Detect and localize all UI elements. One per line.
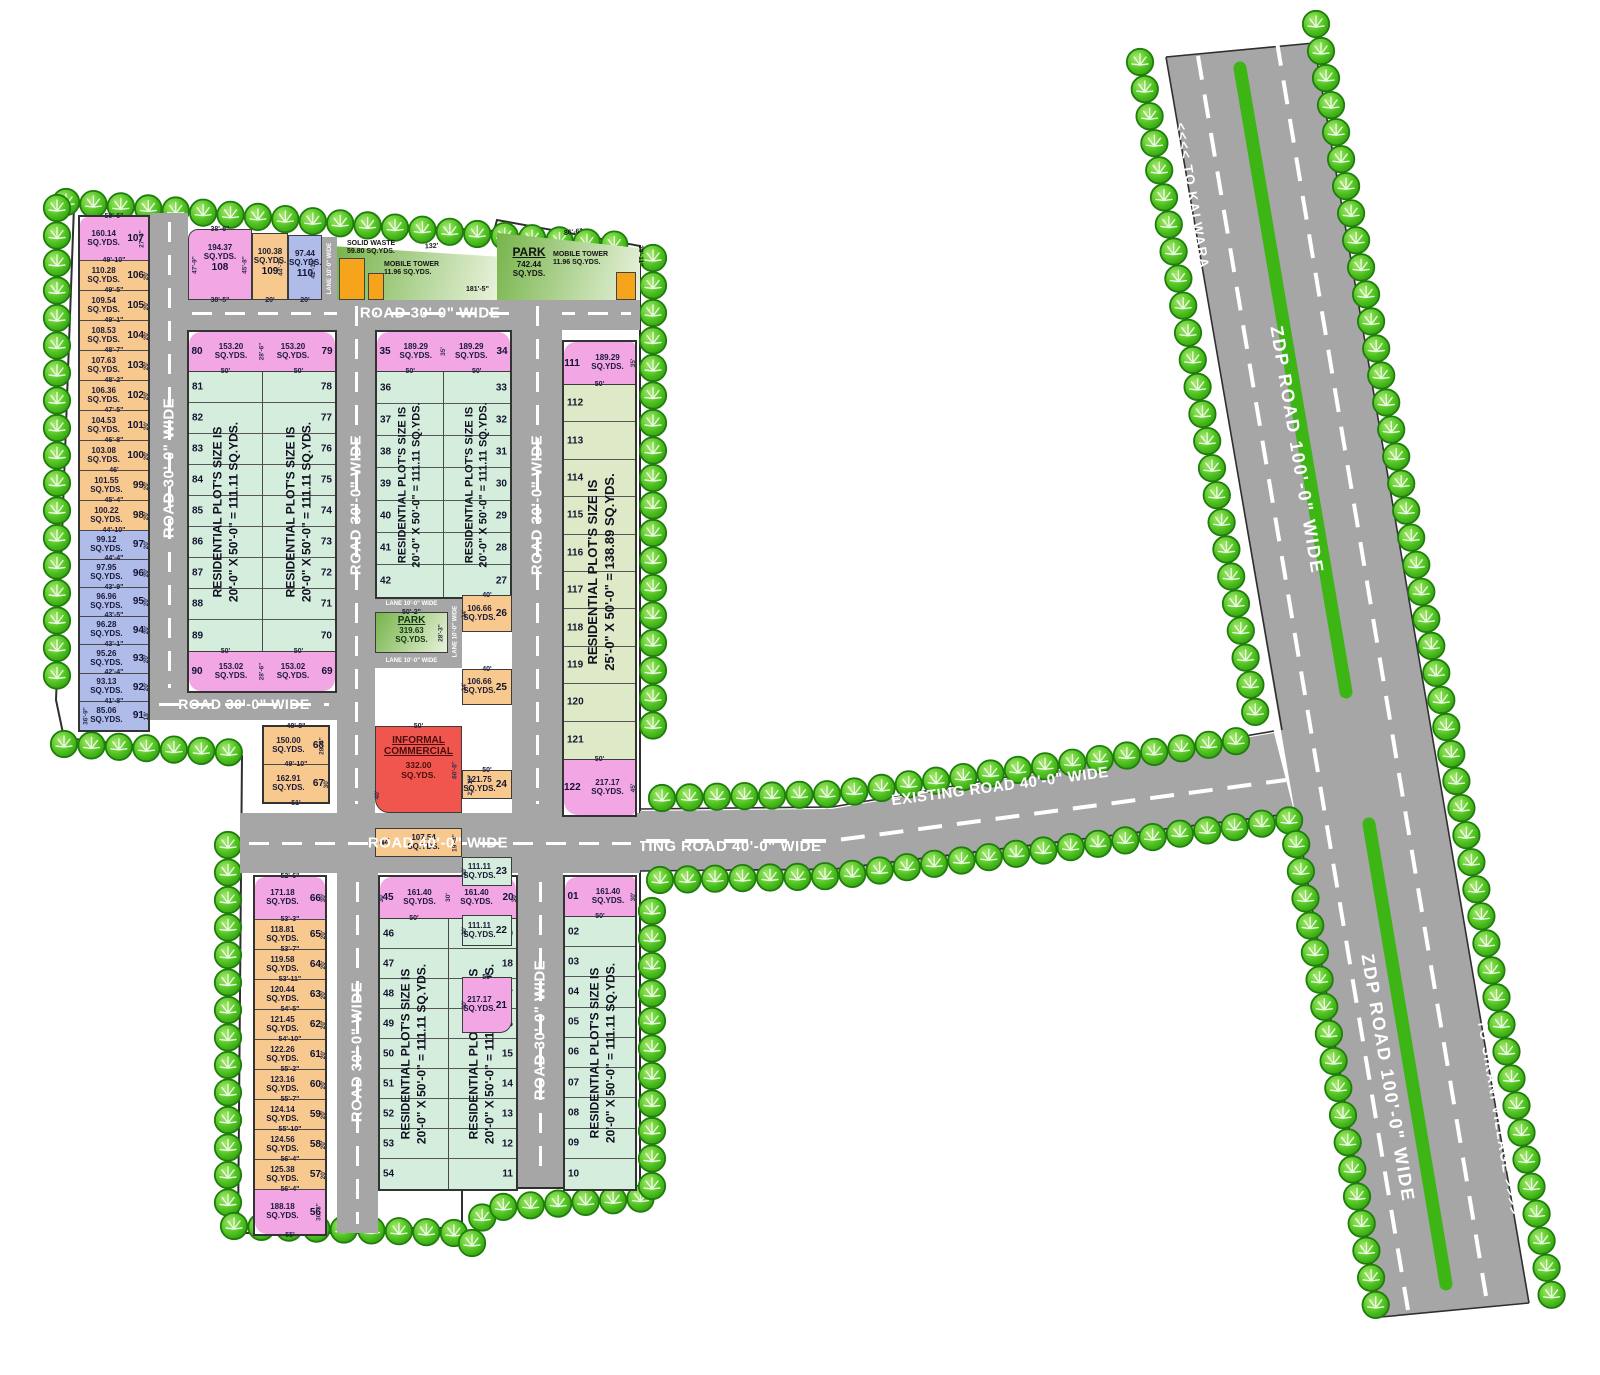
plot-number: 15	[502, 1048, 513, 1059]
plot-number: 54	[383, 1169, 394, 1180]
plot-area: 109.54SQ.YDS.	[80, 297, 127, 315]
tree-icon	[1458, 849, 1484, 875]
tree-icon	[640, 327, 666, 353]
plot-42: 42	[377, 565, 443, 597]
plot-10: 10	[565, 1159, 635, 1189]
dim-mid: 28'-6"	[257, 348, 267, 355]
label-line-2: 20'-0" X 50'-0" = 111.11 SQ.YDS.	[410, 402, 424, 567]
label-line-2: 20'-0" X 50'-0" = 111.11 SQ.YDS.	[299, 421, 315, 601]
road30-label-bottomleft: ROAD 30'-0" WIDE	[178, 696, 310, 712]
area-unit: SQ.YDS.	[264, 746, 313, 755]
plot-number: 71	[321, 599, 332, 610]
tree-icon	[1221, 814, 1247, 840]
dim-label: 42'-4"	[80, 669, 148, 676]
area-unit: SQ.YDS.	[267, 352, 319, 361]
tree-icon	[1433, 714, 1459, 740]
plot-number: 26	[496, 608, 507, 619]
dim-tick: 28'-3"	[438, 624, 445, 642]
tree-icon	[1428, 687, 1454, 713]
tree-icon	[44, 332, 70, 358]
lane-vertical-park: LANE 10'-0" WIDE	[448, 595, 462, 668]
plot-area: 108.53SQ.YDS.	[80, 327, 127, 345]
plot-60: 55'-2"123.16SQ.YDS.6020'	[255, 1069, 325, 1099]
dim-tick: 20'	[143, 626, 150, 635]
tree-icon	[1320, 1048, 1346, 1074]
plot-number: 112	[567, 398, 583, 409]
plot-02: 02	[565, 917, 635, 947]
tree-icon	[1443, 768, 1469, 794]
plot-62: 54'-5"121.45SQ.YDS.6220'	[255, 1009, 325, 1039]
dim-label: 56'-4"	[255, 1156, 325, 1163]
tree-icon	[409, 217, 435, 243]
road30-label-mid2: ROAD 30'-0" WIDE	[529, 435, 546, 575]
tree-icon	[639, 1063, 665, 1089]
dim-label: 47'-5"	[80, 407, 148, 414]
block-b-north-header: 35189.29SQ.YDS.35'189.29SQ.YDS.3450'50'	[377, 332, 510, 372]
tree-icon	[437, 219, 463, 245]
block-a-header: 80153.20SQ.YDS.28'-6"153.20SQ.YDS.7950'5…	[189, 332, 335, 372]
dim-132: 132'	[425, 243, 439, 252]
plot-81: 81	[189, 372, 262, 403]
dim-tick: 20'	[461, 867, 468, 876]
tree-icon	[44, 552, 70, 578]
plot-number: 86	[192, 537, 203, 548]
plot-number: 06	[568, 1047, 579, 1058]
plot-number: 52	[383, 1108, 394, 1119]
tree-icon	[188, 738, 214, 764]
area-unit: SQ.YDS.	[255, 1055, 310, 1064]
tree-icon	[1249, 811, 1275, 837]
tree-icon	[1114, 742, 1140, 768]
tree-icon	[1276, 807, 1302, 833]
tree-icon	[757, 864, 783, 890]
plot-104: 49'-1"108.53SQ.YDS.10420'	[80, 320, 148, 350]
tree-icon	[600, 1187, 626, 1213]
lane-vertical-110: LANE 10'-0" WIDE	[322, 237, 337, 300]
area-unit: SQ.YDS.	[80, 516, 133, 525]
dim-tick: 45'	[630, 783, 637, 792]
mobile-tower-label-2: MOBILE TOWER11.96 SQ.YDS.	[553, 251, 608, 267]
plot-65: 53'-3"118.81SQ.YDS.6520'	[255, 919, 325, 949]
tree-icon	[1363, 335, 1389, 361]
plot-number: 85	[192, 506, 203, 517]
plot-103: 48'-7"107.63SQ.YDS.10320'	[80, 350, 148, 380]
plot-number: 24	[496, 779, 507, 790]
tree-icon	[215, 859, 241, 885]
area-unit: SQ.YDS.	[80, 573, 133, 582]
plot-area: 124.56SQ.YDS.	[255, 1136, 310, 1154]
tree-icon	[1353, 281, 1379, 307]
dim-tick: 45'-8"	[242, 256, 249, 274]
plot-number: 07	[568, 1077, 579, 1088]
tree-icon	[1308, 38, 1334, 64]
tree-icon	[731, 783, 757, 809]
dim-50: 50'	[472, 368, 481, 375]
tree-icon	[1353, 1238, 1379, 1264]
tree-icon	[1363, 1292, 1389, 1318]
tree-icon	[894, 854, 920, 880]
tree-icon	[640, 437, 666, 463]
dim-mid-value: 28'-6"	[259, 343, 266, 361]
tree-icon	[1127, 49, 1153, 75]
plot-number: 106	[127, 270, 144, 281]
tree-icon	[839, 861, 865, 887]
tree-icon	[948, 847, 974, 873]
tree-icon	[1170, 293, 1196, 319]
plot-113: 113	[564, 422, 635, 459]
plot-number: 53	[383, 1138, 394, 1149]
plot-66: 52'-6"171.18SQ.YDS.6630'	[255, 877, 325, 919]
tree-icon	[1311, 994, 1337, 1020]
tree-icon	[217, 202, 243, 228]
plot-112: 112	[564, 385, 635, 422]
plot-89: 89	[189, 620, 262, 651]
area-unit: SQ.YDS.	[449, 352, 495, 361]
tree-icon	[814, 781, 840, 807]
dim-50: 50'	[406, 368, 415, 375]
block-b-north-body: 36373839404142RESIDENTIAL PLOT'S SIZE IS…	[377, 372, 510, 597]
tree-icon	[1218, 563, 1244, 589]
block-b-north: 35189.29SQ.YDS.35'189.29SQ.YDS.3450'50'3…	[375, 330, 512, 599]
label-line-1: RESIDENTIAL PLOT'S SIZE IS	[585, 473, 602, 670]
tree-icon	[1204, 482, 1230, 508]
block-c-body: 112113114115116117118119120121RESIDENTIA…	[564, 385, 635, 759]
plot-number: 50	[383, 1048, 394, 1059]
plot-area: 161.40SQ.YDS.	[453, 889, 500, 907]
area-unit: SQ.YDS.	[80, 276, 127, 285]
tree-icon	[44, 387, 70, 413]
plot-98: 45'-4"100.22SQ.YDS.9820'	[80, 500, 148, 530]
area-unit: SQ.YDS.	[80, 306, 127, 315]
plot-56: 56'-4"188.18SQ.YDS.5630'-3"55'	[255, 1189, 325, 1234]
plot-number: 122	[564, 782, 580, 793]
bottom-right-block: 01161.40SQ.YDS.30'50'020304050607080910R…	[563, 875, 637, 1191]
plot-number: 88	[192, 599, 203, 610]
plot-number: 28	[496, 543, 507, 554]
tree-icon	[1368, 362, 1394, 388]
dim-label: 38'-6"	[189, 226, 251, 233]
block-a-body: 818283848586878889RESIDENTIAL PLOT'S SIZ…	[189, 372, 335, 651]
plot-number: 25	[496, 682, 507, 693]
area-unit: SQ.YDS.	[80, 602, 133, 611]
plot-120: 120	[564, 684, 635, 721]
plot-number: 84	[192, 475, 203, 486]
plot-area: 121.45SQ.YDS.	[255, 1016, 310, 1034]
dim-50: 50'	[294, 368, 303, 375]
tree-icon	[1306, 967, 1332, 993]
plot-area: 111.11SQ.YDS.	[463, 922, 496, 940]
tree-icon	[640, 712, 666, 738]
area-unit: SQ.YDS.	[80, 239, 127, 248]
tree-icon	[640, 272, 666, 298]
dim-label: 46'	[80, 467, 148, 474]
plot-area: 153.02SQ.YDS.	[267, 663, 319, 681]
plot-area: 153.20SQ.YDS.	[205, 343, 257, 361]
tree-icon	[1373, 389, 1399, 415]
plot-number: 03	[568, 956, 579, 967]
tree-icon	[1503, 1092, 1529, 1118]
dim-tick: 30'	[320, 894, 327, 903]
lane-label: LANE 10'-0" WIDE	[375, 653, 448, 668]
tree-icon	[1333, 173, 1359, 199]
tree-icon	[1508, 1119, 1534, 1145]
area-unit: SQ.YDS.	[80, 486, 133, 495]
dim-label: 50'-6"	[80, 213, 148, 220]
plot-area: 118.81SQ.YDS.	[255, 926, 310, 944]
tree-icon	[1513, 1146, 1539, 1172]
plot-68: 48'-8"150.00SQ.YDS.6828'-5"	[264, 727, 328, 764]
dim-50: 50'	[221, 648, 230, 655]
residential-size-label: RESIDENTIAL PLOT'S SIZE IS20'-0" X 50'-0…	[283, 421, 314, 601]
plot-area: 106.66SQ.YDS.	[463, 678, 496, 696]
residential-size-label: RESIDENTIAL PLOT'S SIZE IS20'-0" X 50'-0…	[398, 964, 429, 1144]
block-a-footer: 90153.02SQ.YDS.28'-6"153.02SQ.YDS.6950'5…	[189, 651, 335, 691]
tree-icon	[812, 863, 838, 889]
plot-area: 101.55SQ.YDS.	[80, 477, 133, 495]
tree-icon	[639, 898, 665, 924]
plot-number: 10	[568, 1168, 579, 1179]
plot-number: 70	[321, 630, 332, 641]
dim-tick: 20'	[143, 597, 150, 606]
area-unit: SQ.YDS.	[80, 687, 133, 696]
plot-area: 162.91SQ.YDS.	[264, 775, 313, 793]
plot-36: 36	[377, 372, 443, 404]
plot-number: 04	[568, 987, 579, 998]
tree-icon	[639, 1035, 665, 1061]
road30-label-top: ROAD 30'-0" WIDE	[360, 305, 500, 322]
plot-number: 100	[127, 450, 144, 461]
dim-tick: 20'	[320, 930, 327, 939]
dim-label: 53'-11"	[255, 976, 325, 983]
plot-25: 40'106.66SQ.YDS.2524'	[462, 669, 512, 705]
tree-icon	[215, 1052, 241, 1078]
area-unit: SQ.YDS.	[393, 352, 439, 361]
plot-number: 73	[321, 537, 332, 548]
plot-number: 74	[321, 506, 332, 517]
area-unit: SQ.YDS.	[453, 898, 500, 907]
tree-icon	[44, 497, 70, 523]
plot-number: 69	[319, 666, 335, 677]
tree-icon	[221, 1213, 247, 1239]
plot-number: 90	[189, 666, 205, 677]
dim-label: 40'	[463, 592, 511, 599]
plot-110: 97.44SQ.YDS.11042'-10"20'	[288, 235, 322, 300]
tree-icon	[1139, 824, 1165, 850]
plot-22: 111.11SQ.YDS.2220'	[462, 915, 512, 946]
dim-tick: 20'	[143, 331, 150, 340]
dim-mid-value: 35'	[440, 347, 447, 356]
dim-tick: 20'	[320, 990, 327, 999]
dim-label: 50'	[463, 767, 511, 774]
dim-label: 55'-2"	[255, 1066, 325, 1073]
tree-icon	[44, 305, 70, 331]
dim-label: 50'	[376, 723, 461, 730]
tree-icon	[1335, 1129, 1361, 1155]
plot-number: 80	[189, 346, 205, 357]
tree-icon	[44, 442, 70, 468]
plot-area: 124.14SQ.YDS.	[255, 1106, 310, 1124]
plot-54: 54	[380, 1159, 448, 1189]
tree-icon	[1418, 633, 1444, 659]
tree-icon	[1325, 1075, 1351, 1101]
tree-icon	[215, 997, 241, 1023]
tree-icon	[640, 410, 666, 436]
residential-size-label: RESIDENTIAL PLOT'S SIZE IS20'-0" X 50'-0…	[210, 421, 241, 601]
tree-icon	[215, 942, 241, 968]
tree-icon	[44, 635, 70, 661]
tree-icon	[1283, 831, 1309, 857]
plot-area: 122.26SQ.YDS.	[255, 1046, 310, 1064]
plot-number: 35	[377, 346, 393, 357]
tree-icon	[1478, 957, 1504, 983]
dim-tick: 20'	[320, 1080, 327, 1089]
tree-icon	[161, 736, 187, 762]
tree-icon	[44, 580, 70, 606]
plot-number: 21	[496, 1000, 507, 1011]
west-strip: 50'-6"160.14SQ.YDS.10727'-5"49'-10"110.2…	[78, 215, 150, 732]
tree-icon	[1223, 728, 1249, 754]
dim-tick: 20'	[143, 301, 150, 310]
tree-icon	[1136, 103, 1162, 129]
dim-label: 50'	[463, 974, 511, 981]
tree-icon	[1473, 930, 1499, 956]
plot-63: 53'-11"120.44SQ.YDS.6320'	[255, 979, 325, 1009]
plot-number: 29	[496, 511, 507, 522]
tree-icon	[640, 492, 666, 518]
tree-icon	[216, 739, 242, 765]
dim-tick: 20'	[143, 421, 150, 430]
tree-icon	[1160, 238, 1186, 264]
plot-area: 106.36SQ.YDS.	[80, 387, 127, 405]
tree-icon	[1184, 374, 1210, 400]
dim-tick: 20'	[320, 1020, 327, 1029]
plot-number: 22	[496, 925, 507, 936]
residential-size-label: RESIDENTIAL PLOT'S SIZE IS25'-0" X 50'-0…	[585, 473, 619, 670]
plot-number: 78	[321, 382, 332, 393]
plot-area: 217.17SQ.YDS.	[580, 779, 635, 797]
dim-label: 43'-9"	[80, 584, 148, 591]
area-unit: SQ.YDS.	[463, 1005, 496, 1014]
area-unit: SQ.YDS.	[255, 965, 310, 974]
tree-icon	[44, 525, 70, 551]
plot-102: 48'-2"106.36SQ.YDS.10220'	[80, 380, 148, 410]
plot-area: 123.16SQ.YDS.	[255, 1076, 310, 1094]
tree-icon	[1228, 617, 1254, 643]
dim-label: 45'-4"	[80, 497, 148, 504]
mobile-tower-square-2	[616, 272, 636, 300]
plot-area: 107.63SQ.YDS.	[80, 357, 127, 375]
area-unit: SQ.YDS.	[463, 614, 496, 623]
tree-icon	[1468, 903, 1494, 929]
dim-label: 48'-2"	[80, 377, 148, 384]
park-small: 50'-2"PARK319.63SQ.YDS.28'-3"	[375, 612, 448, 653]
tree-icon	[1208, 509, 1234, 535]
tree-icon	[1388, 471, 1414, 497]
plot-number: 14	[502, 1078, 513, 1089]
tree-icon	[44, 662, 70, 688]
plot-number: 121	[567, 735, 584, 746]
area-unit: SQ.YDS.	[580, 788, 635, 797]
plot-number: 75	[321, 475, 332, 486]
tree-icon	[354, 212, 380, 238]
plot-number: 47	[383, 958, 394, 969]
plot-number: 38	[380, 446, 391, 457]
tree-icon	[640, 300, 666, 326]
tree-icon	[640, 685, 666, 711]
plot-57: 56'-4"125.38SQ.YDS.5720'	[255, 1159, 325, 1189]
area-unit: SQ.YDS.	[581, 897, 635, 906]
dim-tick: 28'-5"	[319, 737, 326, 755]
tree-icon	[640, 465, 666, 491]
plot-number: 39	[380, 478, 391, 489]
tree-icon	[1223, 590, 1249, 616]
label-line-1: RESIDENTIAL PLOT'S SIZE IS	[587, 963, 603, 1143]
dim-tick: 21'-11"	[467, 774, 474, 795]
dim-label: 49'-10"	[80, 257, 148, 264]
tree-icon	[190, 200, 216, 226]
tree-icon	[215, 1107, 241, 1133]
tree-icon	[44, 250, 70, 276]
area-unit: SQ.YDS.	[80, 396, 127, 405]
ic-name-2: COMMERCIAL	[376, 746, 461, 757]
plot-area: 161.40SQ.YDS.	[581, 888, 635, 906]
dim-label-bottom: 55'	[255, 1232, 325, 1239]
tree-icon	[1533, 1255, 1559, 1281]
area-unit: SQ.YDS.	[255, 935, 310, 944]
plot-number: 31	[496, 446, 507, 457]
dim-tick: 40'	[461, 1001, 468, 1010]
tree-icon	[215, 1024, 241, 1050]
plot-26: 40'106.66SQ.YDS.2624'	[462, 595, 512, 632]
plot-23: 111.11SQ.YDS.2320'	[462, 857, 512, 886]
plot-area: 160.14SQ.YDS.	[80, 230, 127, 248]
plot-number: 111	[564, 358, 580, 369]
tree-icon	[1199, 455, 1225, 481]
dim-mid-value: 30'	[445, 893, 452, 902]
plot-number: 42	[380, 575, 391, 586]
ic-unit: SQ.YDS.	[376, 770, 461, 780]
plot-area: 188.18SQ.YDS.	[255, 1203, 310, 1221]
plot-area: 99.12SQ.YDS.	[80, 536, 133, 554]
plot-number: 08	[568, 1107, 579, 1118]
tree-icon	[1237, 672, 1263, 698]
dim-label: 49'-5"	[80, 287, 148, 294]
block-c-header: 111189.29SQ.YDS.35'50'	[564, 342, 635, 385]
tree-icon	[1408, 579, 1434, 605]
area-unit: SQ.YDS.	[267, 672, 319, 681]
tree-icon	[1378, 416, 1404, 442]
tree-icon	[676, 784, 702, 810]
tree-icon	[1338, 200, 1364, 226]
plot-number: 116	[567, 547, 583, 558]
dim-tick: 20'	[461, 926, 468, 935]
plot-area: 106.66SQ.YDS.	[463, 605, 496, 623]
plot-area: 125.38SQ.YDS.	[255, 1166, 310, 1184]
bottomleft-strip: 52'-6"171.18SQ.YDS.6630'53'-3"118.81SQ.Y…	[253, 875, 327, 1236]
dim-tick: 20'	[143, 451, 150, 460]
plot-number: 32	[496, 414, 507, 425]
tree-icon	[1358, 1265, 1384, 1291]
tree-icon	[640, 547, 666, 573]
area-unit: SQ.YDS.	[205, 672, 257, 681]
tree-icon	[640, 602, 666, 628]
block-c: 111189.29SQ.YDS.35'50'112113114115116117…	[562, 340, 637, 817]
label-line-1: RESIDENTIAL PLOT'S SIZE IS	[396, 402, 410, 567]
tree-icon	[729, 865, 755, 891]
dim-label-bottom: 20'	[289, 297, 321, 304]
mobile-tower-label-1: MOBILE TOWER11.96 SQ.YDS.	[384, 261, 439, 277]
plot-number: 36	[380, 382, 391, 393]
